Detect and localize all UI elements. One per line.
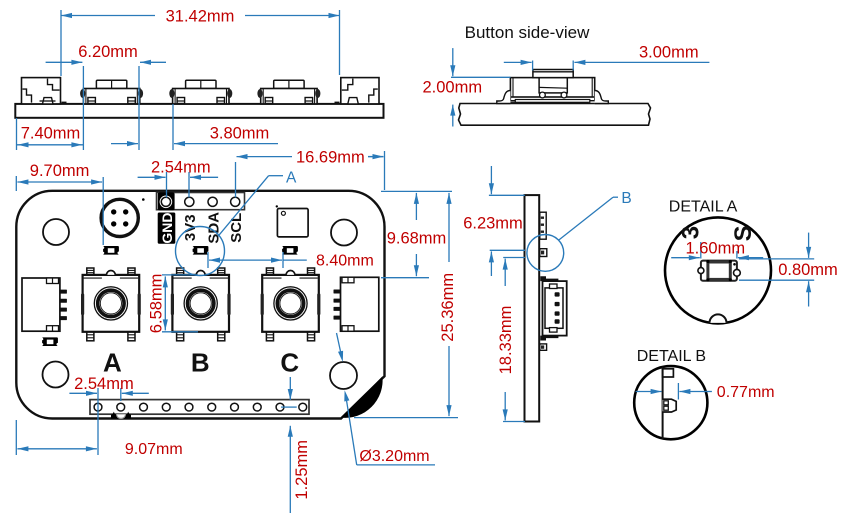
svg-text:0.80mm: 0.80mm xyxy=(778,261,838,279)
svg-text:8.40mm: 8.40mm xyxy=(316,252,374,269)
svg-text:B: B xyxy=(621,190,631,207)
svg-text:3.80mm: 3.80mm xyxy=(210,125,270,143)
svg-text:3: 3 xyxy=(677,226,704,239)
svg-text:16.69mm: 16.69mm xyxy=(296,148,365,166)
svg-text:DETAIL A: DETAIL A xyxy=(669,199,738,216)
svg-text:3.00mm: 3.00mm xyxy=(639,44,699,62)
svg-text:6.20mm: 6.20mm xyxy=(78,43,138,61)
svg-text:1.25mm: 1.25mm xyxy=(293,440,311,500)
svg-text:1.60mm: 1.60mm xyxy=(685,239,745,257)
svg-text:9.68mm: 9.68mm xyxy=(387,229,447,247)
svg-text:Button side-view: Button side-view xyxy=(465,23,590,42)
svg-text:18.33mm: 18.33mm xyxy=(497,306,515,375)
svg-text:6.58mm: 6.58mm xyxy=(147,274,165,334)
svg-text:6.23mm: 6.23mm xyxy=(463,215,523,233)
svg-text:7.40mm: 7.40mm xyxy=(21,125,81,143)
svg-text:25.36mm: 25.36mm xyxy=(439,273,457,342)
svg-text:C: C xyxy=(280,347,299,377)
svg-text:SCL: SCL xyxy=(228,213,245,243)
svg-text:DETAIL B: DETAIL B xyxy=(637,348,706,365)
svg-text:2.54mm: 2.54mm xyxy=(151,158,211,176)
svg-text:9.07mm: 9.07mm xyxy=(125,441,183,458)
svg-text:31.42mm: 31.42mm xyxy=(166,8,235,26)
svg-text:2.54mm: 2.54mm xyxy=(74,375,134,393)
svg-text:A: A xyxy=(286,169,297,186)
svg-text:GND: GND xyxy=(159,213,175,244)
svg-text:2.00mm: 2.00mm xyxy=(422,79,482,97)
svg-text:A: A xyxy=(103,347,122,377)
svg-text:9.70mm: 9.70mm xyxy=(30,162,90,180)
svg-text:Ø3.20mm: Ø3.20mm xyxy=(359,448,429,465)
svg-text:B: B xyxy=(191,347,210,377)
svg-text:0.77mm: 0.77mm xyxy=(717,384,775,401)
